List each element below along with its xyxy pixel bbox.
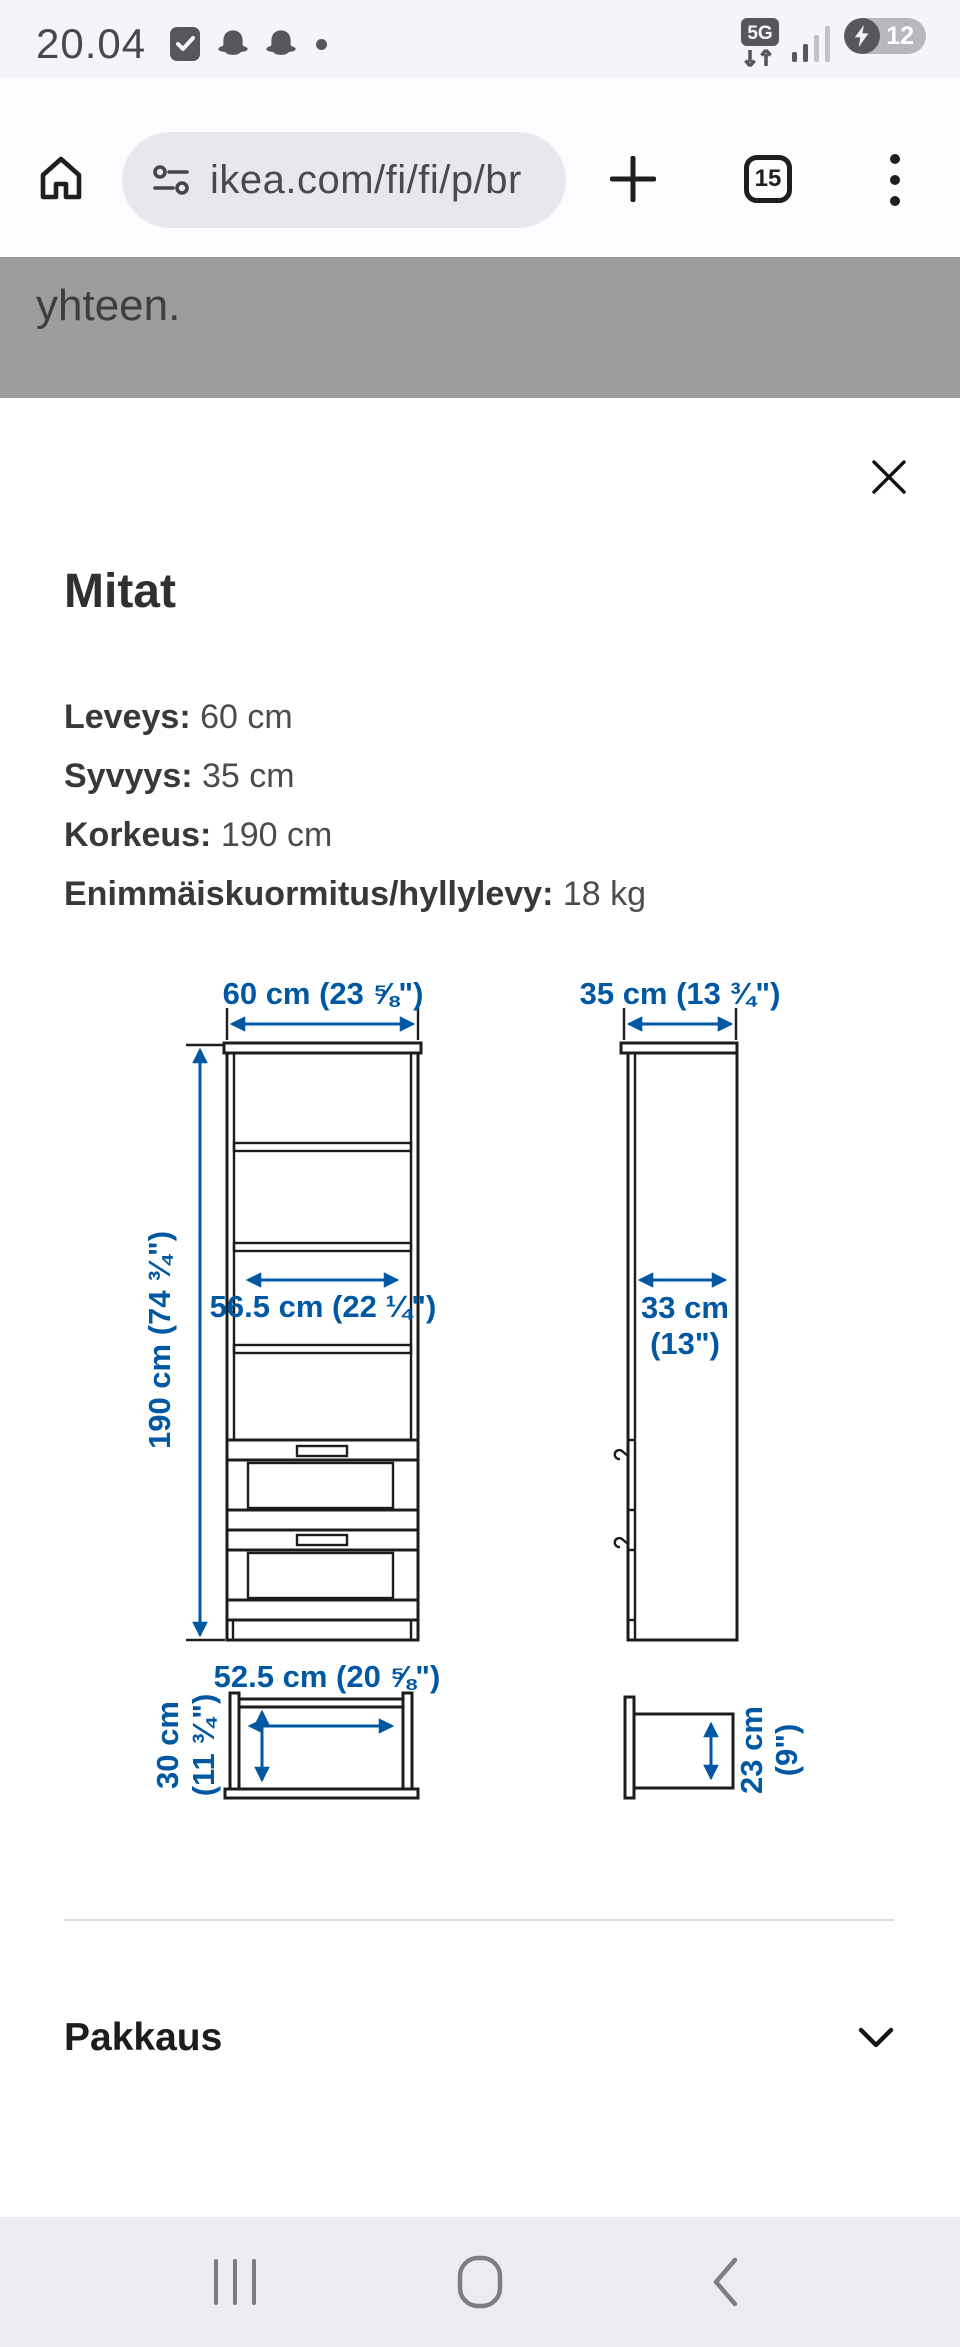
front-view: 60 cm (23 ⅝") 190 cm (74 ¾") 56.5 cm (22…	[142, 976, 436, 1640]
drawer-front-view: 52.5 cm (20 ⅝") 30 cm (11 ¾")	[150, 1659, 440, 1798]
site-settings-icon	[150, 159, 192, 201]
5g-network-icon: 5G	[738, 18, 780, 70]
drawer-depth-label-1: 23 cm	[734, 1706, 769, 1794]
gesture-nav-bar	[0, 2217, 960, 2347]
modal-title: Mitat	[64, 564, 176, 619]
side-inner-depth-label-1: 33 cm	[641, 1290, 729, 1325]
svg-text:5G: 5G	[748, 23, 773, 44]
phone-screen: 20.04 5G	[0, 0, 960, 2347]
notification-icons	[168, 25, 327, 63]
inner-width-label: 56.5 cm (22 ¼")	[210, 1289, 437, 1324]
battery-percent: 12	[880, 22, 926, 51]
drawer-knob	[615, 1450, 628, 1459]
snapchat-ghost-icon	[216, 26, 250, 62]
checkmark-badge-icon	[168, 25, 202, 63]
status-right-icons: 5G 12	[738, 18, 926, 70]
home-button[interactable]	[36, 153, 86, 203]
charging-bolt-icon	[844, 18, 880, 54]
drawer-height-label-1: 30 cm	[150, 1701, 185, 1789]
snapchat-ghost-icon	[264, 26, 298, 62]
new-tab-button[interactable]	[610, 156, 656, 202]
tab-switcher-button[interactable]: 15	[744, 155, 792, 203]
notification-dot-icon	[316, 39, 327, 50]
section-divider	[64, 1919, 894, 1921]
dimensions-modal: Mitat Leveys: 60 cm Syvyys: 35 cm Korkeu…	[0, 398, 960, 2217]
home-nav-icon	[457, 2255, 503, 2309]
drawer-width-label: 52.5 cm (20 ⅝")	[214, 1659, 441, 1694]
spec-row: Korkeus: 190 cm	[64, 806, 646, 865]
menu-dot	[890, 175, 900, 185]
side-inner-depth-label-2: (13")	[650, 1326, 720, 1361]
accordion-pakkaus[interactable]: Pakkaus	[64, 1996, 894, 2080]
spec-row: Syvyys: 35 cm	[64, 747, 646, 806]
modal-scrim[interactable]: yhteen.	[0, 257, 960, 398]
back-button[interactable]	[690, 2247, 760, 2317]
drawer-knob	[615, 1538, 628, 1547]
side-depth-label: 35 cm (13 ¾")	[580, 976, 781, 1011]
signal-strength-icon	[792, 18, 832, 66]
spec-row: Leveys: 60 cm	[64, 688, 646, 747]
spec-row: Enimmäiskuormitus/hyllylevy: 18 kg	[64, 865, 646, 924]
browser-toolbar: ikea.com/fi/fi/p/br 15	[0, 78, 960, 257]
page-text-behind: yhteen.	[36, 281, 180, 331]
url-text: ikea.com/fi/fi/p/br	[210, 158, 522, 203]
recents-icon	[213, 2259, 257, 2305]
battery-icon: 12	[844, 18, 926, 54]
dimension-diagram: 60 cm (23 ⅝") 190 cm (74 ¾") 56.5 cm (22…	[60, 960, 960, 1840]
url-bar[interactable]: ikea.com/fi/fi/p/br	[122, 132, 566, 228]
browser-menu-button[interactable]	[882, 152, 908, 208]
back-icon	[711, 2257, 739, 2307]
status-bar: 20.04 5G	[0, 0, 960, 78]
drawer-side-view: 23 cm (9")	[625, 1697, 804, 1798]
side-view: 35 cm (13 ¾") 33 cm (13")	[580, 976, 781, 1640]
chevron-down-icon	[858, 2027, 894, 2049]
drawer-height-label-2: (11 ¾")	[186, 1694, 221, 1797]
menu-dot	[890, 196, 900, 206]
tab-count: 15	[755, 165, 782, 193]
front-height-label: 190 cm (74 ¾")	[142, 1231, 177, 1449]
spec-list: Leveys: 60 cm Syvyys: 35 cm Korkeus: 190…	[64, 688, 646, 924]
menu-dot	[890, 154, 900, 164]
accordion-label: Pakkaus	[64, 2016, 222, 2060]
clock: 20.04	[36, 20, 146, 68]
front-width-label: 60 cm (23 ⅝")	[223, 976, 424, 1011]
home-nav-button[interactable]	[445, 2247, 515, 2317]
close-button[interactable]	[868, 456, 910, 498]
recents-button[interactable]	[200, 2247, 270, 2317]
drawer-depth-label-2: (9")	[769, 1724, 804, 1777]
